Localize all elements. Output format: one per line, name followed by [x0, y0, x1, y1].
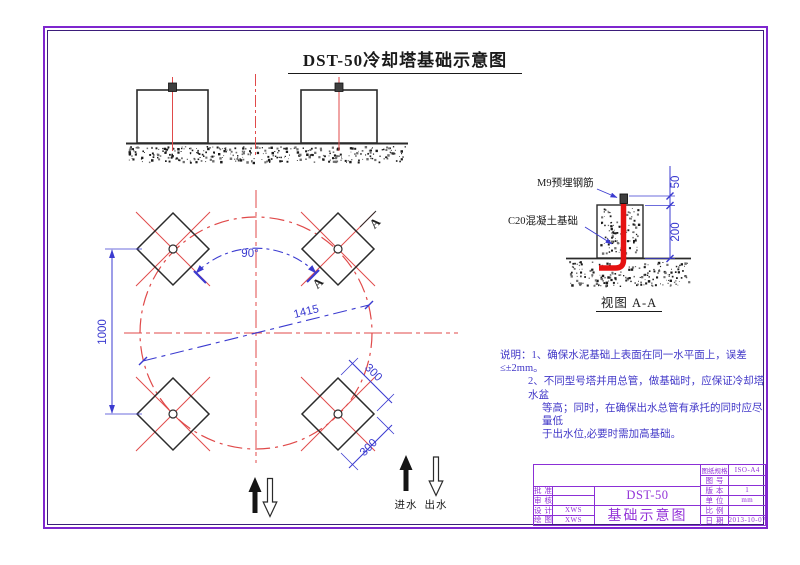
dim-300: 300 300: [341, 358, 394, 470]
dim-1000-text: 1000: [97, 319, 109, 345]
note-line-2: 2、不同型号塔并用总管，做基础时，应保证冷却塔水盆: [500, 375, 768, 401]
draft-value: XWS: [552, 515, 594, 525]
elevation-view: [126, 74, 408, 164]
review-value: [552, 495, 594, 505]
rebar-label: M9预埋钢筋: [537, 176, 594, 189]
rebar-bolt-head: [620, 194, 628, 204]
title-block-left: 批准 DST-50 审核 设计 XWS 基础示意图 绘图 XWS: [534, 465, 700, 525]
draft-label: 绘图: [534, 515, 552, 525]
doc-title: 基础示意图: [594, 505, 700, 524]
model-name: DST-50: [594, 486, 700, 505]
dim-1000: 1000: [97, 249, 142, 414]
title-block: 批准 DST-50 审核 设计 XWS 基础示意图 绘图 XWS 图纸规格 IS…: [533, 464, 766, 526]
concrete-label: C20混凝土基础: [508, 214, 578, 227]
spec-label: 图纸规格: [701, 465, 728, 475]
version-value: 1: [728, 485, 766, 495]
notes-block: 说明：1、确保水泥基础上表面在同一水平面上，误差≤±2mm。 2、不同型号塔并用…: [500, 349, 768, 441]
review-label: 审核: [534, 495, 552, 505]
pad-bottom-left: [136, 377, 210, 451]
note-line-3: 等高；同时，在确保出水总管有承托的同时应尽量低: [500, 402, 768, 428]
dim-50-text: 50: [670, 176, 682, 189]
scale-label: 比例: [701, 505, 728, 515]
anchor-bolt-left: [169, 83, 177, 92]
detail-caption: 视图 A-A: [601, 295, 657, 310]
unit-value: mm: [728, 495, 766, 505]
plan-view: 1000 90° 1415 300: [97, 190, 458, 470]
pad-bottom-right: [301, 377, 375, 451]
spec-value: ISO-A4: [728, 465, 766, 475]
title-block-right: 图纸规格 ISO-A4 图号 版本 1 单位 mm 比例 日期 2013-10-…: [700, 465, 765, 525]
note-line-4: 于出水位,必要时需加高基础。: [500, 428, 768, 441]
scale-value: [728, 505, 766, 515]
note-line-1: 说明：1、确保水泥基础上表面在同一水平面上，误差≤±2mm。: [500, 349, 768, 375]
dim-200-text: 200: [670, 222, 682, 241]
date-value: 2013-10-07: [728, 515, 766, 525]
outlet-label: 出水: [425, 498, 448, 511]
date-label: 日期: [701, 515, 728, 525]
dim-90-text: 90°: [241, 248, 258, 260]
version-label: 版本: [701, 485, 728, 495]
outlet-arrow-icon: [263, 479, 277, 517]
unit-label: 单位: [701, 495, 728, 505]
section-mark-a-top: A: [366, 214, 384, 232]
design-label: 设计: [534, 505, 552, 515]
flow-arrows: 进水 出水: [249, 455, 448, 517]
drawing-sheet: DST-50冷却塔基础示意图: [0, 0, 800, 565]
approve-label: 批准: [534, 486, 552, 496]
outlet-legend-arrow-icon: [429, 457, 443, 496]
section-detail-view: 50 200 M9预埋钢筋 C20混凝土基础 视图 A-A: [508, 166, 691, 312]
inlet-label: 进水: [395, 499, 418, 511]
drawing-no-value: [728, 475, 766, 485]
dim-300a-text: 300: [362, 362, 384, 384]
anchor-bolt-right: [335, 83, 343, 92]
inlet-arrow-icon: [249, 477, 262, 513]
inlet-legend-arrow-icon: [400, 455, 413, 491]
design-value: XWS: [552, 505, 594, 515]
approve-value: [552, 486, 594, 496]
drawing-no-label: 图号: [701, 475, 728, 485]
title-block-empty-cell: [534, 465, 700, 486]
